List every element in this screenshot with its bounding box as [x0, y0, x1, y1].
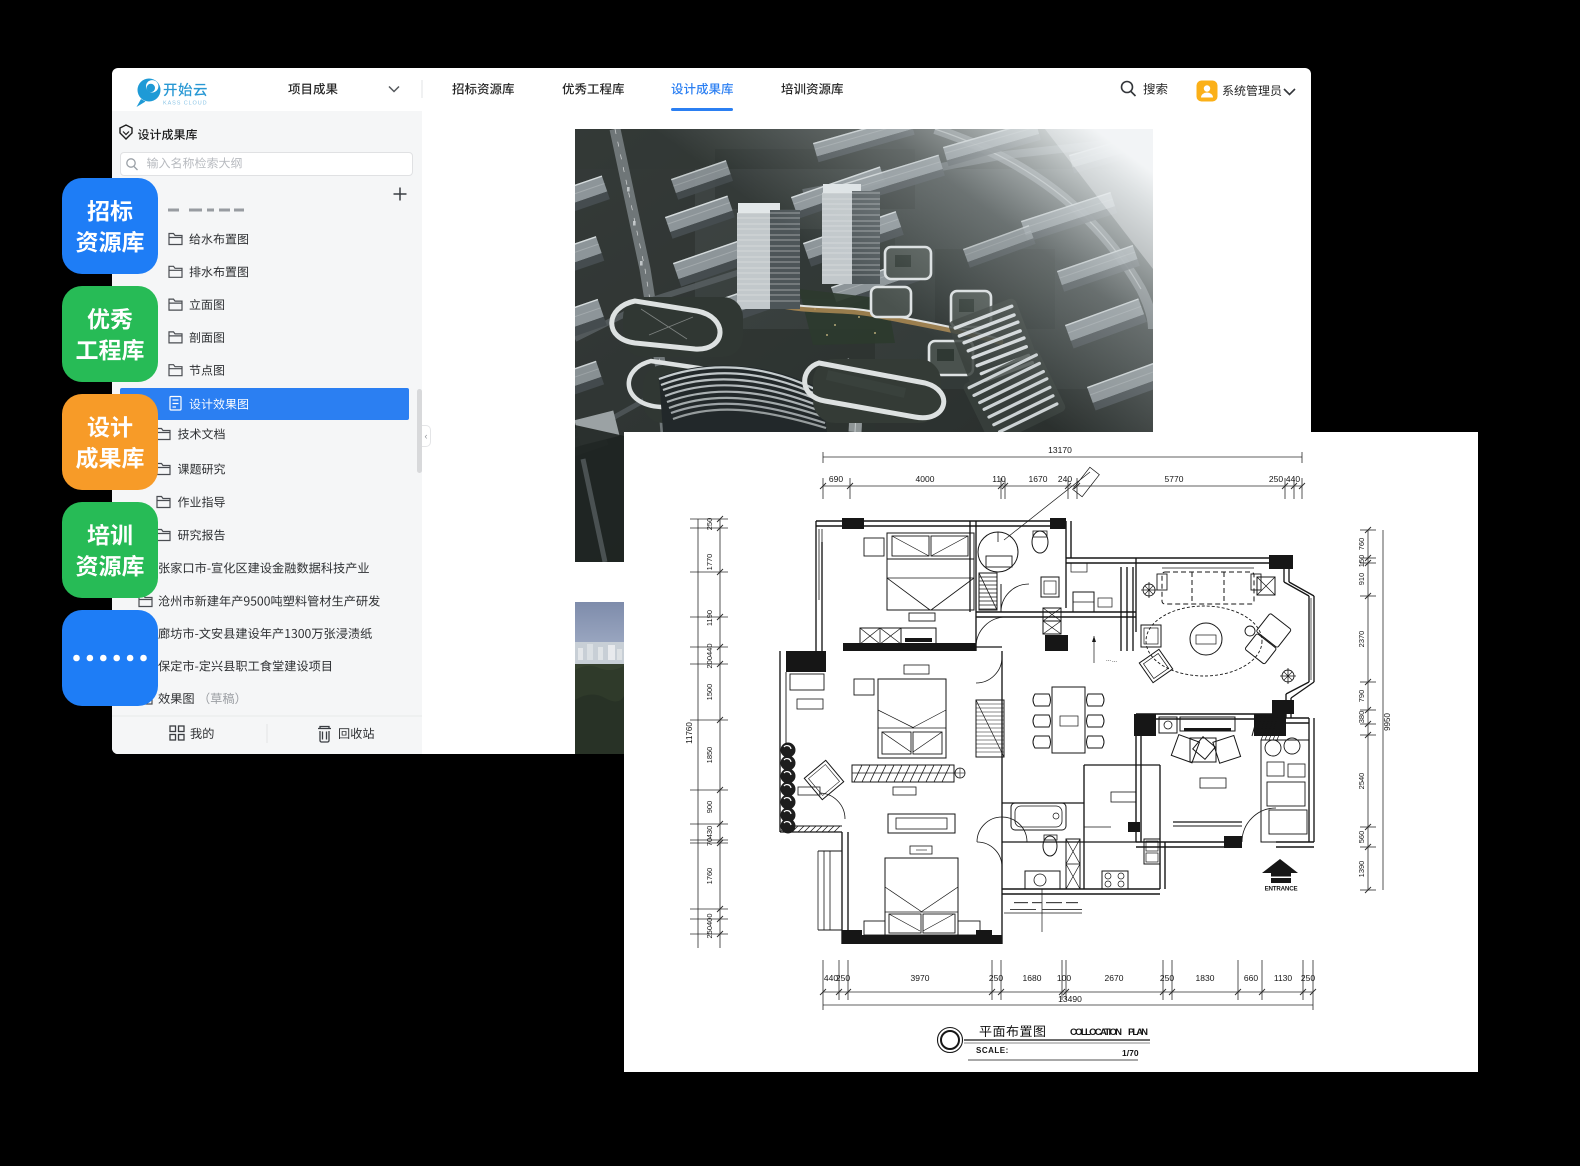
svg-text:1390: 1390: [1357, 861, 1366, 878]
svg-text:1190: 1190: [705, 610, 714, 626]
svg-text:2670: 2670: [1105, 973, 1124, 983]
svg-text:11760: 11760: [685, 722, 694, 744]
svg-text:1500: 1500: [705, 684, 714, 701]
svg-text:250: 250: [836, 973, 850, 983]
svg-text:900: 900: [705, 801, 714, 814]
svg-text:KASS CLOUD: KASS CLOUD: [163, 101, 207, 107]
svg-text:1670: 1670: [1029, 474, 1048, 484]
svg-text:2370: 2370: [1357, 631, 1366, 648]
svg-text:4000: 4000: [916, 474, 935, 484]
svg-text:...: ...: [1112, 658, 1117, 664]
svg-text:250400: 250400: [705, 913, 714, 938]
svg-text:SCALE:: SCALE:: [976, 1046, 1009, 1055]
svg-text:ENTRANCE: ENTRANCE: [1265, 886, 1298, 893]
svg-text:110: 110: [992, 474, 1006, 484]
svg-text:250: 250: [705, 518, 714, 531]
svg-text:660: 660: [1244, 973, 1258, 983]
svg-text:13490: 13490: [1058, 994, 1082, 1004]
svg-text:1/70: 1/70: [1122, 1048, 1139, 1058]
svg-text:1850: 1850: [705, 747, 714, 764]
svg-text:790: 790: [1357, 690, 1366, 703]
svg-text:1770: 1770: [705, 554, 714, 571]
svg-text:PLAN: PLAN: [1128, 1027, 1148, 1038]
svg-text:560: 560: [1357, 831, 1366, 844]
svg-text:240: 240: [1058, 474, 1072, 484]
svg-text:9950: 9950: [1383, 713, 1392, 731]
svg-text:910: 910: [1357, 573, 1366, 586]
svg-text:1130: 1130: [1274, 973, 1293, 983]
svg-text:200440: 200440: [705, 643, 714, 668]
svg-text:250: 250: [1301, 973, 1315, 983]
svg-text:1830: 1830: [1196, 973, 1215, 983]
svg-text:3970: 3970: [911, 973, 930, 983]
svg-text:1680: 1680: [1023, 973, 1042, 983]
svg-text:380: 380: [1357, 711, 1366, 724]
svg-text:440: 440: [1286, 474, 1300, 484]
svg-text:1760: 1760: [705, 868, 714, 885]
svg-text:2540: 2540: [1357, 773, 1366, 790]
svg-text:70: 70: [705, 838, 714, 846]
svg-text:5770: 5770: [1165, 474, 1184, 484]
svg-text:250: 250: [1269, 474, 1283, 484]
svg-text:COLLOCATION: COLLOCATION: [1070, 1027, 1122, 1038]
svg-text:250: 250: [1160, 973, 1174, 983]
svg-text:13170: 13170: [1048, 445, 1072, 455]
svg-text:690: 690: [829, 474, 843, 484]
svg-text:100: 100: [1057, 973, 1071, 983]
svg-text:250: 250: [989, 973, 1003, 983]
svg-text:...: ...: [1106, 657, 1111, 663]
svg-text:760: 760: [1357, 538, 1366, 551]
svg-text:150: 150: [1357, 555, 1366, 568]
svg-text:430: 430: [705, 826, 714, 839]
